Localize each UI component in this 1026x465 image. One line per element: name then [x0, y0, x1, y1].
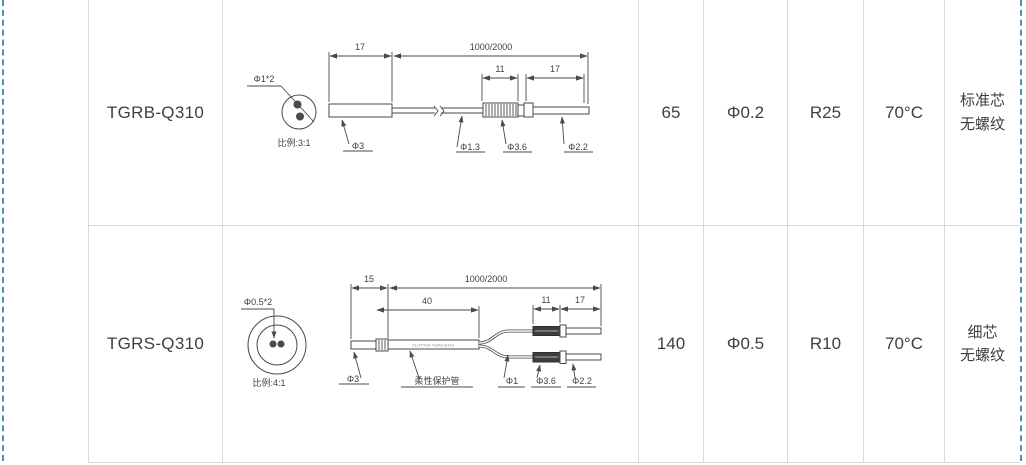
page-break-line-right: [1020, 0, 1022, 461]
tgrb-drawing: Φ1*2 比例:3:1: [223, 0, 639, 226]
tgrb-knurled-connector: [483, 103, 518, 117]
tgrb-dim-head: 17: [329, 42, 392, 102]
spec-table: TGRB-Q310 Φ1*2 比例:3:1: [88, 0, 1020, 463]
page-break-line-left: [2, 0, 4, 461]
svg-text:Φ3.6: Φ3.6: [507, 142, 527, 152]
tgrs-label-tube: 柔性保护管: [401, 351, 473, 387]
tgrs-lower-connector: [533, 351, 601, 364]
tgrs-value-1: 140: [638, 226, 703, 463]
tgrs-spec-line1: 细芯: [960, 321, 1005, 344]
tgrb-dim-knurl: 11: [482, 64, 518, 101]
svg-text:Φ1.3: Φ1.3: [460, 142, 480, 152]
tgrs-dim-tip: 17: [561, 295, 600, 309]
model-name-tgrb: TGRB-Q310: [88, 0, 222, 226]
tgrb-label-cable-dia: Φ1.3: [456, 116, 485, 152]
svg-text:17: 17: [355, 42, 365, 52]
tgrs-scale-caption: 比例:4:1: [252, 377, 285, 388]
tgrb-value-4: 70°C: [863, 0, 944, 226]
tgrb-scale-caption: 比例:3:1: [277, 137, 310, 148]
svg-text:11: 11: [541, 295, 550, 305]
tgrs-spec-line2: 无螺纹: [960, 344, 1005, 367]
svg-text:17: 17: [575, 295, 585, 305]
tgrb-label-body-dia: Φ3: [342, 120, 373, 151]
tgrs-spec: 细芯 无螺纹: [944, 226, 1020, 463]
tgrb-label-tip-dia: Φ2.2: [562, 117, 593, 152]
svg-text:11: 11: [495, 64, 504, 74]
tgrs-core-label: Φ0.5*2: [244, 297, 272, 307]
tgrs-cross-section: Φ0.5*2 比例:4:1: [241, 297, 306, 388]
tgrb-cable: [392, 106, 483, 116]
tgrb-label-knurl-dia: Φ3.6: [502, 120, 532, 152]
diagram-tgrb: Φ1*2 比例:3:1: [222, 0, 638, 226]
tgrs-dim-knurl: 11: [533, 295, 560, 324]
tgrs-value-4: 70°C: [863, 226, 944, 463]
tgrb-sensor-body: [329, 104, 392, 117]
tgrs-sensor-body: [351, 339, 388, 351]
svg-text:Φ2.2: Φ2.2: [568, 142, 588, 152]
tgrb-spec-line2: 无螺纹: [960, 113, 1005, 136]
tgrs-tube-print: CLOTTER TGRS-Q310: [412, 343, 455, 348]
tgrb-core-label: Φ1*2: [254, 74, 275, 84]
tgrs-branch-cables: [479, 331, 533, 357]
tgrb-cross-section: Φ1*2 比例:3:1: [247, 74, 316, 148]
tgrs-dim-tube: 40: [377, 296, 479, 338]
svg-text:15: 15: [364, 274, 374, 284]
tgrs-label-body-dia: Φ3: [339, 352, 369, 384]
svg-text:柔性保护管: 柔性保护管: [414, 375, 459, 386]
tgrs-dim-head: 15: [351, 274, 388, 339]
diagram-tgrs: Φ0.5*2 比例:4:1 CLOTTER TGRS-Q310: [222, 226, 638, 463]
svg-text:17: 17: [550, 64, 560, 74]
tgrs-label-tip-dia: Φ2.2: [567, 364, 596, 387]
tgrs-value-2: Φ0.5: [703, 226, 787, 463]
tgrb-ferrule: [518, 103, 533, 117]
svg-text:Φ1: Φ1: [506, 376, 518, 386]
tgrb-tip-rod: [533, 107, 589, 114]
tgrs-flexible-tube: CLOTTER TGRS-Q310: [388, 340, 479, 349]
svg-text:1000/2000: 1000/2000: [465, 274, 508, 284]
tgrs-value-3: R10: [787, 226, 863, 463]
model-name-tgrs: TGRS-Q310: [88, 226, 222, 463]
tgrs-label-cable-dia: Φ1: [498, 355, 525, 387]
tgrb-value-1: 65: [638, 0, 703, 226]
tgrb-dim-tip: 17: [526, 64, 584, 103]
svg-text:Φ3.6: Φ3.6: [536, 376, 556, 386]
tgrb-spec-line1: 标准芯: [960, 89, 1005, 112]
svg-text:1000/2000: 1000/2000: [470, 42, 513, 52]
tgrb-value-3: R25: [787, 0, 863, 226]
svg-text:40: 40: [422, 296, 432, 306]
svg-text:Φ2.2: Φ2.2: [572, 376, 592, 386]
tgrs-upper-connector: [533, 325, 601, 337]
tgrs-label-knurl-dia: Φ3.6: [531, 365, 561, 387]
svg-text:Φ3: Φ3: [352, 141, 364, 151]
tgrs-drawing: Φ0.5*2 比例:4:1 CLOTTER TGRS-Q310: [223, 226, 639, 463]
svg-text:Φ3: Φ3: [347, 374, 359, 384]
tgrb-spec: 标准芯 无螺纹: [944, 0, 1020, 226]
tgrb-value-2: Φ0.2: [703, 0, 787, 226]
